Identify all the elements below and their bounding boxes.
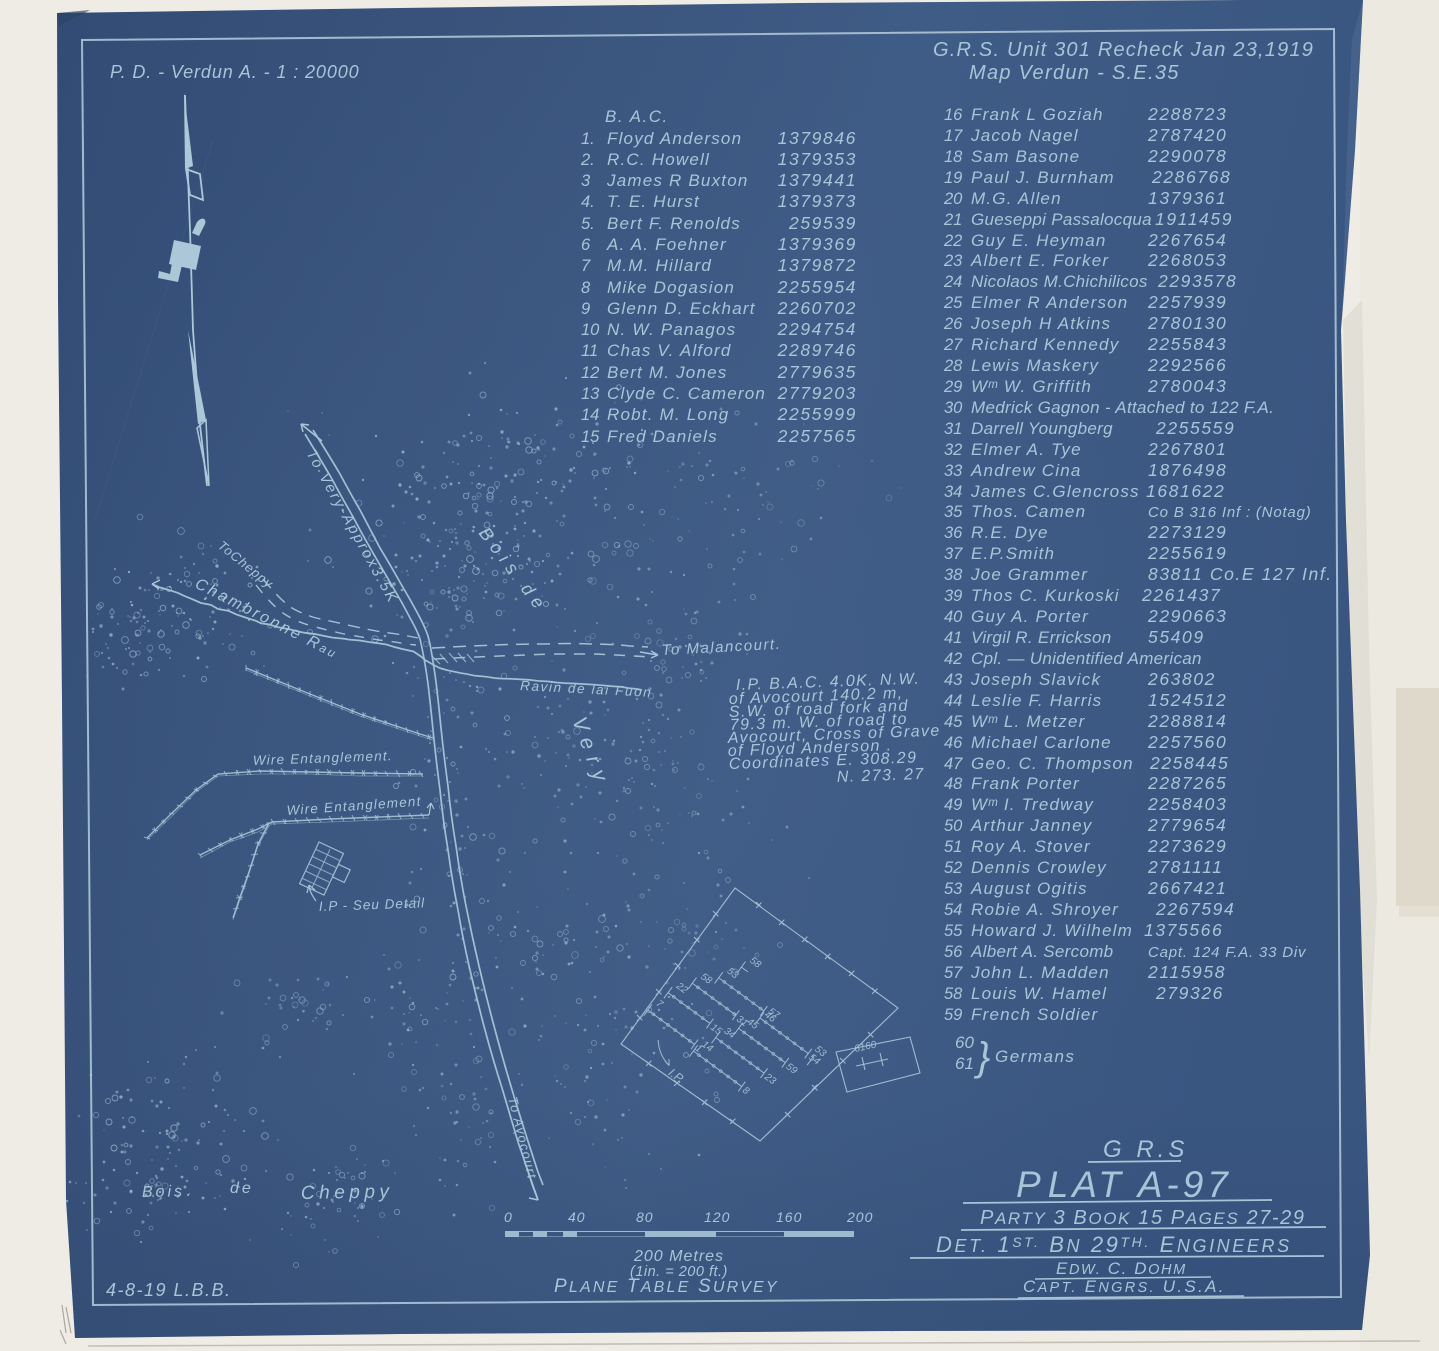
svg-text:Thos. Camen: Thos. Camen [971, 502, 1086, 521]
svg-text:25: 25 [943, 294, 963, 312]
svg-text:2667421: 2667421 [1147, 878, 1227, 898]
svg-text:Nicolaos M.Chichilicos: Nicolaos M.Chichilicos [971, 272, 1148, 291]
svg-text:2287265: 2287265 [1147, 773, 1227, 793]
svg-text:Roy A. Stover: Roy A. Stover [971, 837, 1091, 856]
svg-text:CAPT. ENGRS. U.S.A.: CAPT. ENGRS. U.S.A. [1023, 1277, 1226, 1296]
svg-text:Germans: Germans [995, 1047, 1075, 1066]
svg-text:Arthur Janney: Arthur Janney [970, 816, 1093, 835]
svg-text:Joseph Slavick: Joseph Slavick [970, 670, 1101, 689]
svg-text:G.R.S. Unit 301 Recheck Ja: G.R.S. Unit 301 Recheck Jan 23,1919 [933, 39, 1314, 61]
svg-text:Elmer A. Tye: Elmer A. Tye [971, 440, 1082, 459]
svg-text:22: 22 [943, 232, 962, 250]
svg-text:1379441: 1379441 [778, 170, 857, 190]
svg-text:2779654: 2779654 [1147, 815, 1227, 835]
svg-text:53: 53 [944, 880, 963, 898]
svg-text:58: 58 [944, 985, 963, 1003]
svg-text:2286768: 2286768 [1151, 167, 1231, 187]
svg-text:43: 43 [944, 671, 963, 689]
svg-text:29: 29 [943, 378, 962, 396]
svg-text:17: 17 [944, 127, 963, 145]
svg-text:Andrew Cina: Andrew Cina [970, 461, 1082, 480]
svg-text:49: 49 [944, 796, 962, 814]
svg-text:2273129: 2273129 [1147, 522, 1227, 542]
svg-text:1524512: 1524512 [1148, 690, 1227, 710]
svg-text:Guy E. Heyman: Guy E. Heyman [971, 231, 1107, 250]
svg-text:James R Buxton: James R Buxton [606, 171, 749, 190]
svg-text:Frank Porter: Frank Porter [971, 774, 1080, 793]
svg-text:2780130: 2780130 [1147, 313, 1227, 333]
svg-text:Gueseppi Passalocqua: Gueseppi Passalocqua [971, 210, 1152, 229]
svg-text:27: 27 [943, 336, 963, 354]
svg-text:Joseph H Atkins: Joseph H Atkins [970, 314, 1111, 333]
svg-text:A. A. Foehner: A. A. Foehner [606, 235, 727, 254]
svg-text:Bert F. Renolds: Bert F. Renolds [607, 214, 741, 233]
svg-text:Robie A. Shroyer: Robie A. Shroyer [971, 900, 1119, 919]
svg-text:2267594: 2267594 [1155, 899, 1235, 919]
svg-text:B. A.C.: B. A.C. [605, 107, 669, 126]
svg-text:August Ogitis: August Ogitis [970, 879, 1088, 898]
svg-text:Chas V. Alford: Chas V. Alford [607, 341, 732, 360]
svg-text:1379369: 1379369 [778, 234, 857, 254]
svg-text:40: 40 [568, 1209, 586, 1225]
svg-text:Louis W. Hamel: Louis W. Hamel [971, 984, 1107, 1003]
svg-text:279326: 279326 [1155, 983, 1224, 1003]
svg-text:36: 36 [944, 524, 963, 542]
svg-text:Bois: Bois [142, 1183, 185, 1201]
svg-text:42: 42 [944, 650, 962, 668]
svg-text:Map Verdun - S.E.35: Map Verdun - S.E.35 [969, 62, 1180, 84]
svg-text:2273629: 2273629 [1147, 836, 1227, 856]
svg-text:James C.Glencross: James C.Glencross [970, 482, 1140, 501]
svg-text:7: 7 [581, 257, 591, 275]
svg-text:Fred Daniels: Fred Daniels [607, 427, 718, 446]
svg-text:2289746: 2289746 [777, 340, 857, 360]
svg-text:Medrick Gagnon - Attached to 1: Medrick Gagnon - Attached to 122 F.A. [971, 398, 1274, 417]
svg-text:2781111: 2781111 [1147, 857, 1223, 877]
svg-text:PLANE TABLE SURVEY: PLANE TABLE SURVEY [554, 1276, 779, 1297]
svg-text:Mike Dogasion: Mike Dogasion [607, 278, 735, 297]
svg-text:59: 59 [944, 1006, 962, 1024]
svg-text:1379353: 1379353 [778, 149, 857, 169]
svg-text:52: 52 [944, 859, 962, 877]
svg-text:M.M. Hillard: M.M. Hillard [607, 256, 712, 275]
svg-text:R.E. Dye: R.E. Dye [971, 523, 1049, 542]
svg-text:PLAT A-97: PLAT A-97 [1016, 1164, 1232, 1205]
svg-text:14: 14 [581, 406, 599, 424]
svg-text:2779635: 2779635 [777, 362, 857, 382]
svg-text:46: 46 [944, 734, 963, 752]
svg-text:55: 55 [944, 922, 963, 940]
svg-text:1911459: 1911459 [1155, 209, 1233, 229]
svg-text:2255954: 2255954 [777, 277, 857, 297]
svg-text:54: 54 [944, 901, 962, 919]
svg-text:50: 50 [944, 817, 963, 835]
svg-text:Floyd Anderson: Floyd Anderson [607, 129, 742, 148]
svg-text:N. W. Panagos: N. W. Panagos [607, 320, 736, 339]
svg-text:16: 16 [944, 106, 963, 124]
svg-text:Albert E. Forker: Albert E. Forker [970, 251, 1109, 270]
svg-text:2255999: 2255999 [777, 404, 857, 424]
svg-text:11: 11 [581, 342, 598, 360]
svg-text:1379872: 1379872 [778, 255, 857, 275]
svg-text:1379373: 1379373 [778, 191, 857, 211]
svg-text:(1in. = 200 ft.): (1in. = 200 ft.) [630, 1264, 728, 1280]
svg-text:2292566: 2292566 [1147, 355, 1227, 375]
svg-text:80: 80 [636, 1209, 654, 1225]
svg-text:3: 3 [581, 172, 591, 190]
svg-text:41: 41 [944, 629, 962, 647]
svg-text:35: 35 [944, 503, 963, 521]
svg-text:2258403: 2258403 [1147, 794, 1227, 814]
svg-text:83811 Co.E 127 Inf.: 83811 Co.E 127 Inf. [1148, 564, 1333, 584]
svg-text:2255559: 2255559 [1155, 418, 1235, 438]
svg-text:51: 51 [944, 838, 962, 856]
svg-text:Glenn D. Eckhart: Glenn D. Eckhart [607, 299, 756, 318]
svg-text:Bert M. Jones: Bert M. Jones [607, 363, 727, 382]
svg-text:24: 24 [943, 273, 962, 291]
svg-text:Paul J. Burnham: Paul J. Burnham [971, 168, 1115, 187]
svg-text:P. D. - Verdun A. - 1 : 20000: P. D. - Verdun A. - 1 : 20000 [110, 62, 360, 82]
svg-text:26: 26 [943, 315, 963, 333]
svg-text:Geo. C. Thompson: Geo. C. Thompson [971, 754, 1134, 773]
svg-text:Robt. M. Long: Robt. M. Long [607, 405, 729, 424]
svg-text:Sam Basone: Sam Basone [971, 147, 1080, 166]
svg-text:2290078: 2290078 [1147, 146, 1227, 166]
svg-text:Michael Carlone: Michael Carlone [971, 733, 1112, 752]
svg-text:45: 45 [944, 713, 963, 731]
svg-text:Howard J. Wilhelm: Howard J. Wilhelm [971, 921, 1133, 940]
svg-text:1375566: 1375566 [1144, 920, 1223, 940]
svg-text:2260702: 2260702 [777, 298, 857, 318]
svg-text:Wᵐ L. Metzer: Wᵐ L. Metzer [971, 712, 1086, 731]
svg-text:1.: 1. [581, 130, 595, 148]
svg-text:EDW. C. DOHM: EDW. C. DOHM [1056, 1259, 1187, 1278]
svg-text:Wᵐ W. Griffith: Wᵐ W. Griffith [971, 377, 1092, 396]
svg-text:PARTY 3 BOOK 15 PAGES 27-29: PARTY 3 BOOK 15 PAGES 27-29 [980, 1207, 1306, 1229]
svg-text:E.P.Smith: E.P.Smith [971, 544, 1055, 563]
svg-text:30: 30 [944, 399, 963, 417]
svg-text:10: 10 [581, 321, 600, 339]
svg-text:2780043: 2780043 [1147, 376, 1227, 396]
svg-text:38: 38 [944, 566, 963, 584]
svg-text:2261437: 2261437 [1141, 585, 1221, 605]
svg-text:DET. 1ST. BN 29TH. ENGINEERS: DET. 1ST. BN 29TH. ENGINEERS [936, 1232, 1292, 1257]
svg-text:20: 20 [943, 190, 963, 208]
svg-text:John L. Madden: John L. Madden [970, 963, 1110, 982]
svg-text:Co B 316 Inf : (Notag): Co B 316 Inf : (Notag) [1148, 504, 1312, 521]
svg-text:T. E. Hurst: T. E. Hurst [607, 192, 700, 211]
svg-text:15: 15 [581, 428, 600, 446]
svg-text:2294754: 2294754 [777, 319, 857, 339]
svg-text:57: 57 [944, 964, 963, 982]
svg-text:Virgil R. Errickson: Virgil R. Errickson [971, 628, 1111, 647]
svg-text:44: 44 [944, 692, 962, 710]
svg-text:13: 13 [581, 385, 600, 403]
svg-text:55409: 55409 [1148, 627, 1205, 647]
svg-text:39: 39 [944, 587, 962, 605]
svg-text:32: 32 [944, 441, 962, 459]
svg-text:4-8-19 L.B.B.: 4-8-19 L.B.B. [106, 1280, 232, 1300]
svg-text:N. 273. 27: N. 273. 27 [837, 766, 925, 786]
svg-text:G R.S: G R.S [1103, 1136, 1188, 1163]
svg-text:1379846: 1379846 [778, 128, 857, 148]
svg-text:2258445: 2258445 [1149, 753, 1229, 773]
svg-text:61: 61 [955, 1054, 974, 1073]
svg-text:Frank L Goziah: Frank L Goziah [971, 105, 1104, 124]
svg-text:Elmer R Anderson: Elmer R Anderson [971, 293, 1128, 312]
svg-text:5.: 5. [581, 215, 595, 233]
svg-text:2779203: 2779203 [777, 383, 857, 403]
svg-text:French Soldier: French Soldier [971, 1005, 1098, 1024]
svg-text:120: 120 [704, 1209, 730, 1225]
svg-text:4.: 4. [581, 193, 595, 211]
svg-text:2267654: 2267654 [1147, 230, 1227, 250]
svg-text:2.: 2. [580, 151, 595, 169]
svg-text:Leslie F. Harris: Leslie F. Harris [971, 691, 1102, 710]
svg-text:19: 19 [944, 169, 962, 187]
svg-text:1681622: 1681622 [1146, 481, 1225, 501]
svg-text:2257565: 2257565 [777, 426, 857, 446]
svg-text:259539: 259539 [788, 213, 857, 233]
svg-text:Lewis Maskery: Lewis Maskery [971, 356, 1099, 375]
svg-text:18: 18 [944, 148, 963, 166]
svg-text:Jacob Nagel: Jacob Nagel [970, 126, 1079, 145]
svg-text:1379361: 1379361 [1148, 188, 1227, 208]
svg-text:9: 9 [581, 300, 590, 318]
svg-text:60: 60 [955, 1033, 974, 1052]
svg-text:Wᵐ I. Tredway: Wᵐ I. Tredway [971, 795, 1094, 814]
svg-text:2288723: 2288723 [1147, 104, 1227, 124]
svg-text:263802: 263802 [1147, 669, 1216, 689]
svg-text:21: 21 [943, 211, 962, 229]
svg-text:Clyde C. Cameron: Clyde C. Cameron [607, 384, 766, 403]
svg-text:R.C. Howell: R.C. Howell [607, 150, 710, 169]
svg-text:2257560: 2257560 [1147, 732, 1227, 752]
svg-text:Darrell Youngberg: Darrell Youngberg [971, 419, 1113, 438]
svg-text:2257939: 2257939 [1147, 292, 1227, 312]
svg-text:34: 34 [944, 483, 962, 501]
svg-text:200 Metres: 200 Metres [633, 1248, 724, 1265]
svg-text:Richard Kennedy: Richard Kennedy [971, 335, 1120, 354]
svg-text:2115958: 2115958 [1147, 962, 1226, 982]
svg-text:6: 6 [581, 236, 591, 254]
svg-text:Capt. 124 F.A. 33 Div: Capt. 124 F.A. 33 Div [1148, 944, 1307, 961]
svg-text:31: 31 [944, 420, 962, 438]
svg-text:160: 160 [776, 1209, 802, 1225]
svg-text:2290663: 2290663 [1147, 606, 1227, 626]
svg-text:33: 33 [944, 462, 963, 480]
svg-text:Albert A. Sercomb: Albert A. Sercomb [970, 942, 1113, 961]
svg-text:23: 23 [943, 252, 963, 270]
svg-text:2293578: 2293578 [1157, 271, 1237, 291]
svg-text:1876498: 1876498 [1148, 460, 1227, 480]
svg-text:56: 56 [944, 943, 963, 961]
svg-text:12: 12 [581, 364, 599, 382]
svg-text:0: 0 [504, 1209, 513, 1225]
svg-text:8: 8 [581, 279, 591, 297]
svg-text:Cheppy: Cheppy [301, 1181, 394, 1204]
svg-text:M.G. Allen: M.G. Allen [971, 189, 1062, 208]
svg-text:40: 40 [944, 608, 963, 626]
svg-text:2255619: 2255619 [1147, 543, 1227, 563]
svg-text:2787420: 2787420 [1147, 125, 1227, 145]
svg-text:Guy A. Porter: Guy A. Porter [971, 607, 1089, 626]
svg-text:48: 48 [944, 775, 963, 793]
svg-text:2288814: 2288814 [1147, 711, 1227, 731]
svg-text:47: 47 [944, 755, 963, 773]
svg-text:Cpl. — Unidentified American: Cpl. — Unidentified American [971, 649, 1202, 668]
svg-text:200: 200 [846, 1209, 873, 1225]
svg-text:Dennis Crowley: Dennis Crowley [971, 858, 1107, 877]
svg-text:37: 37 [944, 545, 963, 563]
svg-text:2267801: 2267801 [1147, 439, 1227, 459]
svg-text:28: 28 [943, 357, 963, 375]
svg-text:Thos C. Kurkoski: Thos C. Kurkoski [971, 586, 1120, 605]
svg-text:Joe Grammer: Joe Grammer [970, 565, 1088, 584]
svg-text:2255843: 2255843 [1147, 334, 1227, 354]
svg-text:2268053: 2268053 [1147, 250, 1227, 270]
